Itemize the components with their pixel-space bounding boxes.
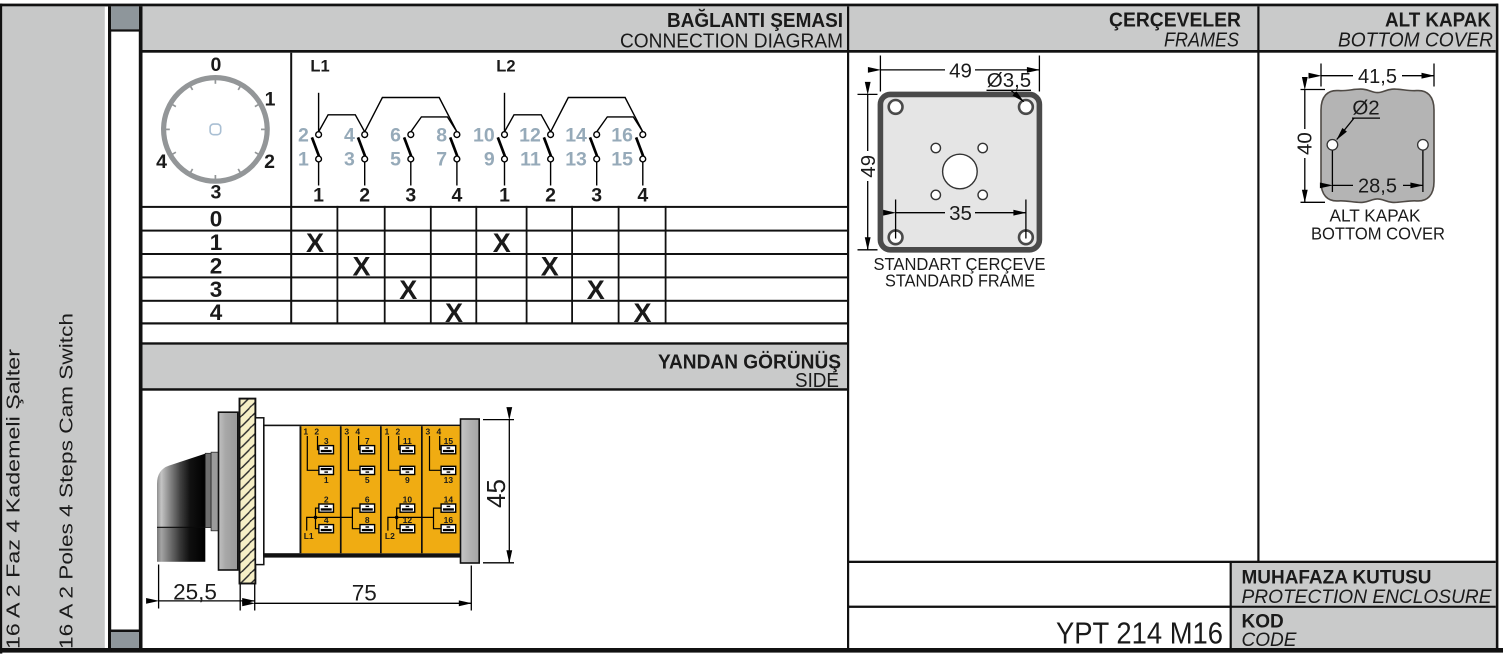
svg-text:12: 12 [519, 124, 541, 146]
svg-text:2: 2 [545, 185, 556, 207]
svg-text:2: 2 [210, 254, 223, 279]
svg-text:14: 14 [444, 495, 454, 505]
svg-text:3: 3 [426, 427, 431, 437]
svg-text:BOTTOM COVER: BOTTOM COVER [1338, 29, 1493, 52]
svg-text:1: 1 [298, 149, 309, 171]
svg-text:4: 4 [637, 185, 648, 207]
svg-text:0: 0 [210, 207, 223, 232]
svg-text:3: 3 [344, 427, 349, 437]
svg-text:7: 7 [436, 149, 447, 171]
svg-text:13: 13 [565, 149, 587, 171]
svg-text:15: 15 [444, 436, 454, 446]
svg-text:25,5: 25,5 [173, 579, 217, 604]
svg-text:10: 10 [473, 124, 495, 146]
svg-text:6: 6 [365, 495, 370, 505]
svg-text:16: 16 [611, 124, 633, 146]
svg-text:3: 3 [591, 185, 602, 207]
svg-text:15: 15 [611, 149, 633, 171]
svg-text:49: 49 [857, 155, 880, 178]
svg-text:L2: L2 [496, 57, 515, 75]
svg-text:10: 10 [403, 495, 413, 505]
svg-text:4: 4 [437, 427, 442, 437]
svg-text:L1: L1 [304, 531, 314, 541]
svg-text:2: 2 [396, 427, 401, 437]
svg-text:49: 49 [949, 59, 972, 82]
svg-text:3: 3 [324, 436, 329, 446]
svg-text:X: X [352, 251, 370, 281]
svg-text:CODE: CODE [1242, 630, 1297, 651]
svg-text:1: 1 [313, 185, 324, 207]
svg-text:BAĞLANTI ŞEMASI: BAĞLANTI ŞEMASI [667, 8, 843, 32]
svg-text:13: 13 [444, 475, 454, 485]
svg-text:2: 2 [314, 427, 319, 437]
svg-text:2: 2 [359, 185, 370, 207]
svg-text:4: 4 [355, 427, 360, 437]
svg-text:L1: L1 [310, 57, 329, 75]
svg-text:YPT 214 M16: YPT 214 M16 [1056, 616, 1223, 651]
svg-text:1: 1 [324, 475, 329, 485]
svg-text:4: 4 [451, 185, 462, 207]
svg-text:41,5: 41,5 [1358, 66, 1397, 88]
svg-text:Ø3,5: Ø3,5 [987, 69, 1031, 92]
svg-text:5: 5 [390, 149, 401, 171]
svg-text:9: 9 [484, 149, 495, 171]
svg-text:28,5: 28,5 [1358, 175, 1397, 197]
svg-text:X: X [633, 298, 651, 328]
svg-text:11: 11 [520, 149, 541, 171]
svg-text:X: X [399, 275, 417, 305]
svg-text:14: 14 [565, 124, 587, 146]
svg-text:1: 1 [210, 230, 223, 255]
svg-text:75: 75 [352, 581, 377, 606]
svg-text:2: 2 [298, 124, 309, 146]
svg-text:8: 8 [365, 515, 370, 525]
svg-text:0: 0 [210, 54, 221, 76]
svg-text:6: 6 [390, 124, 401, 146]
svg-text:2: 2 [324, 495, 329, 505]
svg-text:1: 1 [303, 427, 308, 437]
svg-text:2: 2 [264, 151, 275, 173]
svg-text:3: 3 [344, 149, 355, 171]
svg-text:8: 8 [436, 124, 447, 146]
svg-text:L2: L2 [385, 531, 395, 541]
svg-text:X: X [541, 251, 559, 281]
svg-text:STANDARD FRAME: STANDARD FRAME [885, 271, 1035, 291]
svg-text:3: 3 [210, 277, 223, 302]
svg-text:SIDE: SIDE [795, 369, 839, 392]
svg-text:CONNECTION DIAGRAM: CONNECTION DIAGRAM [620, 30, 843, 53]
svg-text:3: 3 [405, 185, 416, 207]
svg-text:12: 12 [403, 515, 413, 525]
svg-text:X: X [587, 275, 605, 305]
svg-text:4: 4 [156, 151, 167, 173]
svg-text:BOTTOM COVER: BOTTOM COVER [1311, 223, 1445, 243]
svg-text:3: 3 [210, 182, 221, 204]
svg-text:4: 4 [324, 515, 329, 525]
svg-text:35: 35 [949, 202, 972, 225]
svg-text:Ø2: Ø2 [1352, 97, 1379, 120]
svg-text:45: 45 [481, 479, 511, 508]
svg-text:MUHAFAZA KUTUSU: MUHAFAZA KUTUSU [1242, 567, 1432, 588]
svg-text:4: 4 [210, 300, 223, 325]
svg-text:X: X [306, 228, 324, 258]
svg-text:FRAMES: FRAMES [1164, 29, 1239, 52]
svg-text:1: 1 [265, 89, 276, 111]
svg-text:16 A 2 Faz 4 Kademeli Şalter: 16 A 2 Faz 4 Kademeli Şalter [3, 349, 24, 649]
svg-text:7: 7 [365, 436, 370, 446]
svg-text:1: 1 [385, 427, 390, 437]
svg-text:9: 9 [405, 475, 410, 485]
svg-text:1: 1 [499, 185, 510, 207]
svg-text:X: X [445, 298, 463, 328]
svg-text:5: 5 [365, 475, 370, 485]
svg-text:11: 11 [403, 436, 412, 446]
svg-text:PROTECTION ENCLOSURE: PROTECTION ENCLOSURE [1242, 587, 1492, 608]
svg-text:40: 40 [1294, 132, 1317, 155]
svg-text:X: X [493, 228, 511, 258]
svg-text:16: 16 [444, 515, 454, 525]
svg-text:4: 4 [344, 124, 355, 146]
svg-text:16 A 2 Poles 4 Steps Cam Switc: 16 A 2 Poles 4 Steps Cam Switch [56, 313, 77, 649]
